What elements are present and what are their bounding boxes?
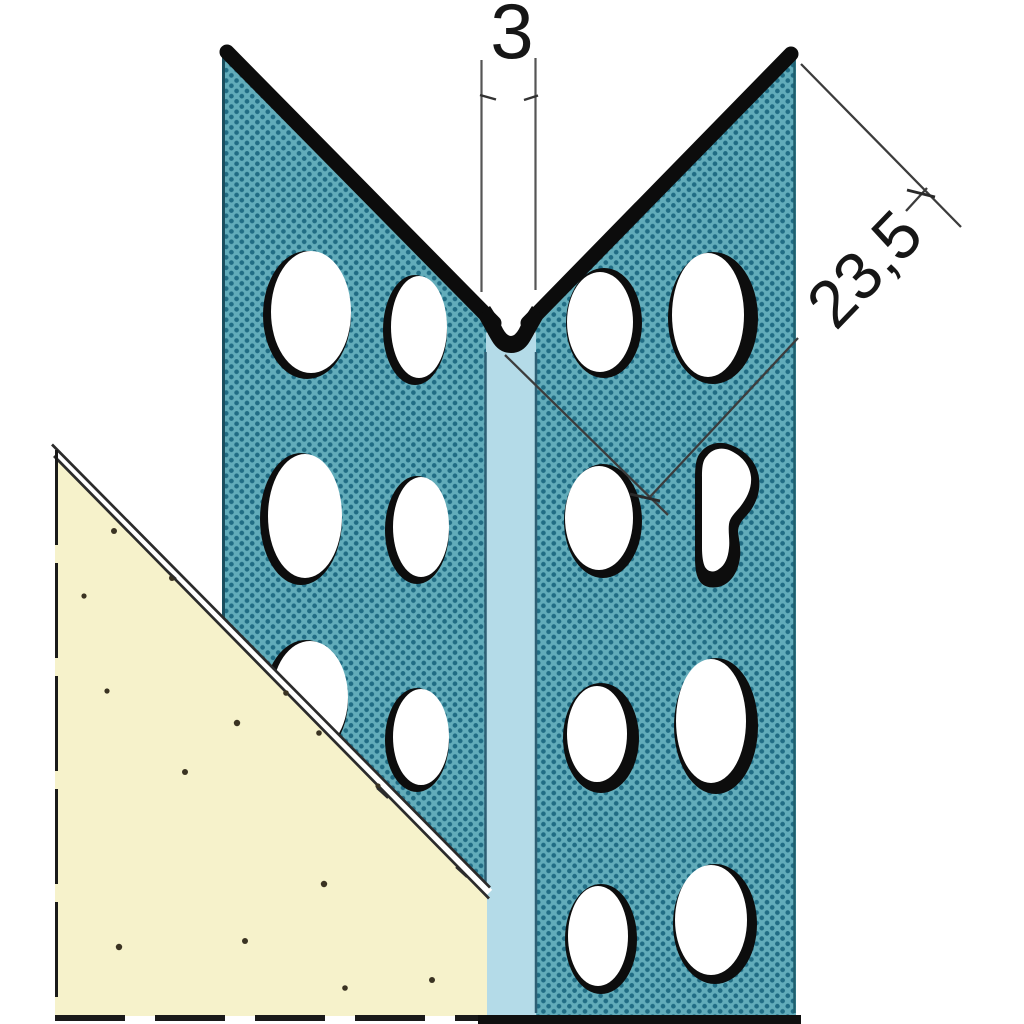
svg-text:3: 3	[490, 0, 533, 75]
